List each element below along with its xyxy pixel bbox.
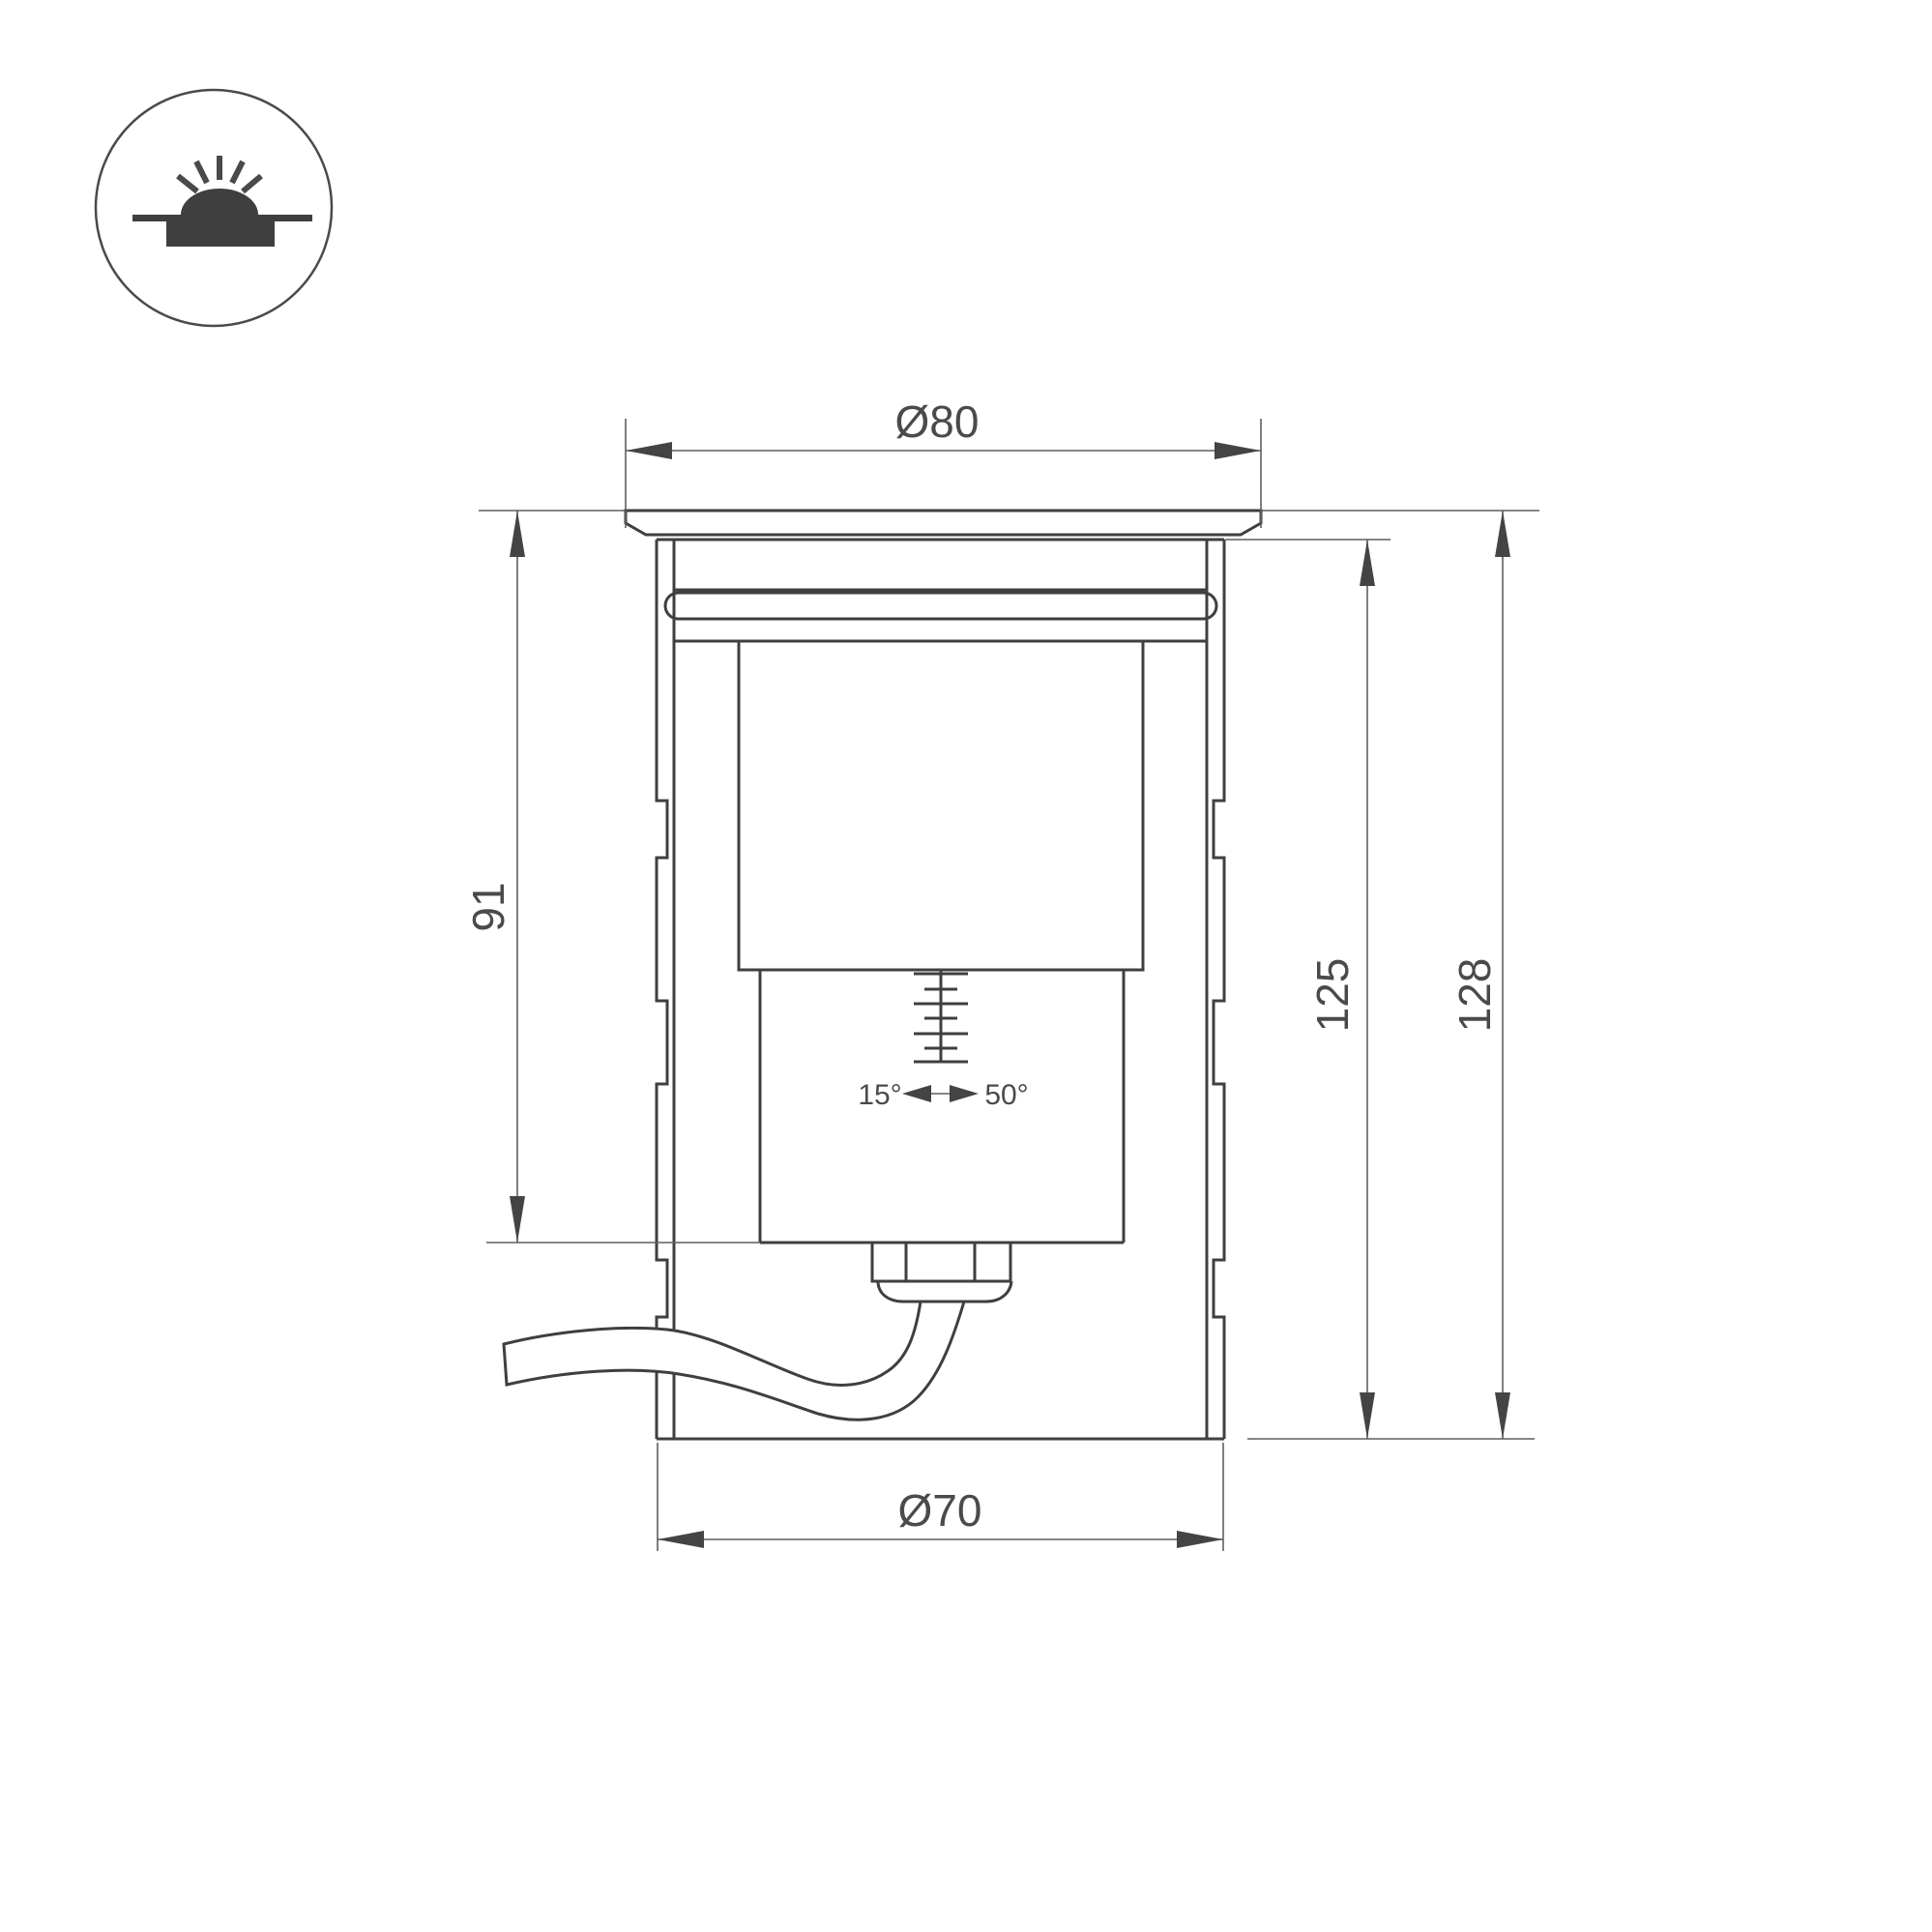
dim-arrow-up	[1360, 540, 1375, 586]
dim-arrow-left	[626, 442, 672, 459]
drawing-page: 15° 50° Ø80 91 125 128	[0, 0, 1932, 1932]
tilt-max-label: 50°	[984, 1079, 1028, 1111]
recessed-ground-light-icon	[96, 90, 332, 326]
gasket-oring	[665, 593, 1216, 619]
dim-top-diameter-label: Ø80	[895, 396, 980, 447]
tilt-min-label: 15°	[858, 1079, 901, 1111]
dim-arrow-up	[1495, 511, 1510, 557]
tilt-arrow-right	[950, 1085, 979, 1102]
tilt-arrow-left	[902, 1085, 931, 1102]
flange-outline	[626, 511, 1261, 535]
bezel-rings	[665, 540, 1216, 641]
technical-drawing-canvas: 15° 50° Ø80 91 125 128	[0, 0, 1932, 1932]
dim-overall-height-label: 128	[1449, 958, 1500, 1033]
dim-recess-depth: 91	[463, 511, 760, 1243]
dim-arrow-right	[1215, 442, 1261, 459]
dim-arrow-down	[510, 1196, 525, 1243]
fixture-cross-section: 15° 50°	[504, 511, 1261, 1439]
lamp-dome-icon	[181, 189, 258, 215]
dim-arrow-down	[1495, 1392, 1510, 1439]
dim-arrow-right	[1177, 1531, 1223, 1548]
dim-recess-depth-label: 91	[463, 882, 513, 931]
left-body-wall	[657, 540, 674, 1439]
dim-arrow-left	[658, 1531, 704, 1548]
tilt-scale-ticks	[914, 970, 968, 1063]
cable-gland	[872, 1243, 1011, 1302]
right-body-wall	[1207, 540, 1224, 1439]
dim-housing-height: 125	[1225, 540, 1390, 1439]
power-cable	[504, 1302, 964, 1420]
tilt-range-annotation: 15° 50°	[858, 1079, 1028, 1111]
dim-top-diameter: Ø80	[626, 396, 1261, 528]
dim-housing-height-label: 125	[1307, 958, 1358, 1033]
gland-nut	[872, 1243, 1010, 1281]
dim-bottom-diameter: Ø70	[658, 1443, 1223, 1551]
dim-arrow-down	[1360, 1392, 1375, 1439]
recessed-body-icon	[166, 221, 275, 247]
dim-bottom-diameter-label: Ø70	[898, 1485, 982, 1536]
dim-overall-height: 128	[1247, 511, 1535, 1439]
light-rays-icon	[178, 156, 261, 191]
lamp-module-box	[739, 641, 1143, 970]
dim-arrow-up	[510, 511, 525, 557]
gland-throat	[878, 1281, 1011, 1302]
ground-line-icon	[132, 215, 312, 221]
